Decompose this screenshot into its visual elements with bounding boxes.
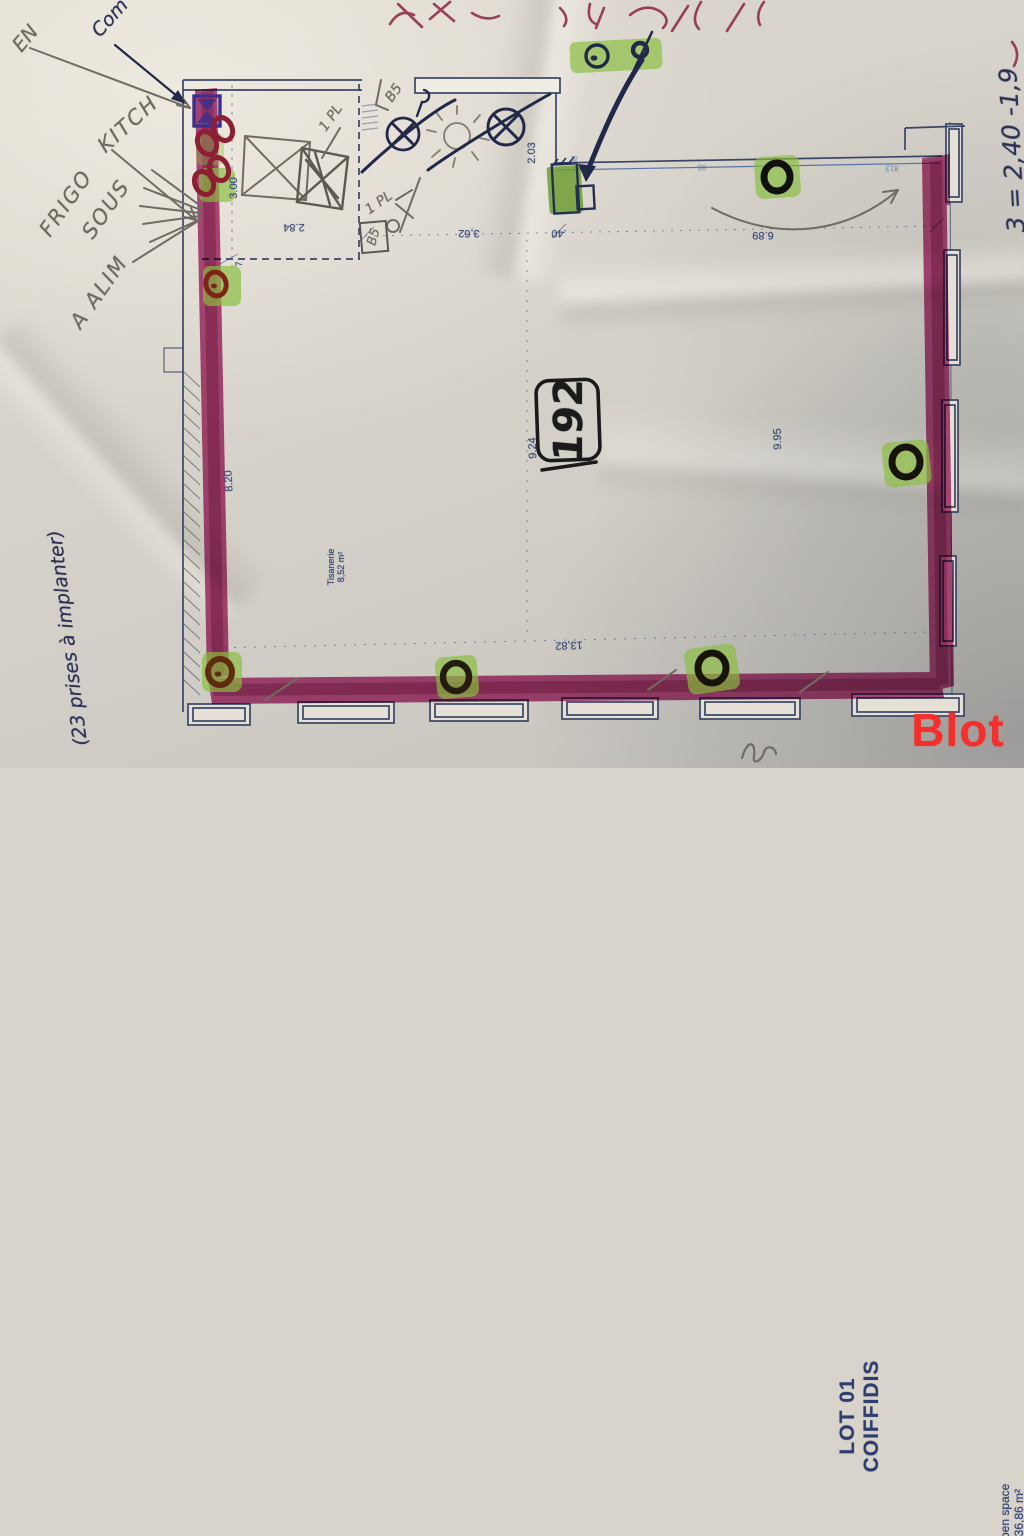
circled-number-box <box>536 379 601 461</box>
pencil-strokes <box>30 48 898 762</box>
floor-plan-photo: { "photo": { "logo_text": "Blot" }, "pla… <box>0 0 1024 768</box>
room-label-lot: LOT 01 COIFFIDIS <box>836 1356 900 1476</box>
plan-linework <box>0 0 1024 768</box>
bold-ink-arrow <box>588 60 642 170</box>
lot-name: COIFFIDIS <box>860 1360 884 1473</box>
outlet-symbol-single <box>203 163 920 691</box>
micro-text-lines <box>362 104 378 130</box>
hatched-wall <box>184 372 200 695</box>
red-handwriting-strokes <box>390 2 1017 66</box>
photo-background: LOT 01 COIFFIDIS Open space 136,86 m² Ti… <box>0 0 1024 768</box>
openspace-label: Open space <box>999 1484 1013 1536</box>
lot-number: LOT 01 <box>836 1377 860 1454</box>
openspace-area: 136,86 m² <box>1013 1489 1024 1536</box>
highlight-top-strip <box>569 38 662 74</box>
pencil-arrow <box>30 48 190 108</box>
circled-number-underline <box>542 462 596 470</box>
outlet-highlights-green <box>196 38 932 700</box>
pencil-squiggle <box>742 744 776 761</box>
pencil-curve-arrow <box>712 190 898 229</box>
room-label-openspace: Open space 136,86 m² <box>999 1476 1024 1536</box>
